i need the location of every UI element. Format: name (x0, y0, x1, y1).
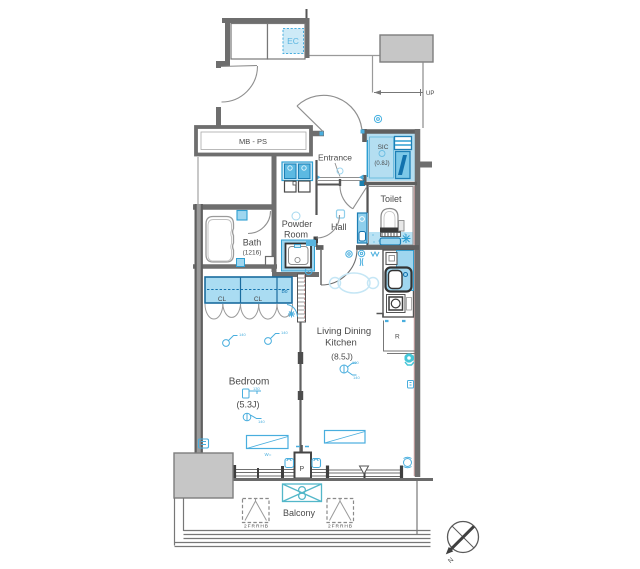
svg-text:P: P (300, 466, 305, 473)
svg-text:R: R (395, 334, 400, 341)
svg-text:(8.5J): (8.5J) (331, 352, 353, 362)
svg-text:(1216): (1216) (243, 250, 262, 257)
svg-text:140: 140 (353, 375, 360, 380)
svg-text:MB - PS: MB - PS (239, 137, 267, 146)
svg-text:140: 140 (258, 419, 265, 424)
svg-text:Bath: Bath (243, 238, 262, 248)
svg-text:Bo: Bo (281, 289, 287, 295)
svg-text:Balcony: Balcony (283, 508, 316, 518)
svg-text:Powder: Powder (282, 219, 313, 229)
svg-text:2FRRHB: 2FRRHB (328, 524, 352, 530)
svg-text:EC: EC (287, 36, 299, 46)
svg-text:Toilet: Toilet (380, 194, 402, 204)
svg-text:140: 140 (239, 332, 246, 337)
svg-text:UP: UP (426, 91, 434, 97)
svg-text:CL: CL (254, 296, 263, 303)
svg-text:CL: CL (218, 296, 227, 303)
svg-text:140: 140 (281, 330, 288, 335)
svg-text:100: 100 (352, 360, 359, 365)
svg-text:(0.8J): (0.8J) (374, 161, 389, 167)
svg-text:(5.3J): (5.3J) (236, 400, 259, 410)
svg-text:130: 130 (253, 386, 260, 391)
svg-text:Entrance: Entrance (318, 153, 352, 163)
svg-text:Bedroom: Bedroom (229, 377, 270, 388)
svg-text:2FRRHB: 2FRRHB (244, 524, 268, 530)
svg-text:Living Dining: Living Dining (317, 326, 371, 337)
svg-text:Kitchen: Kitchen (325, 338, 357, 349)
svg-text:SIC: SIC (378, 144, 389, 151)
svg-text:W=: W= (265, 452, 272, 457)
svg-text:Room: Room (284, 230, 308, 240)
